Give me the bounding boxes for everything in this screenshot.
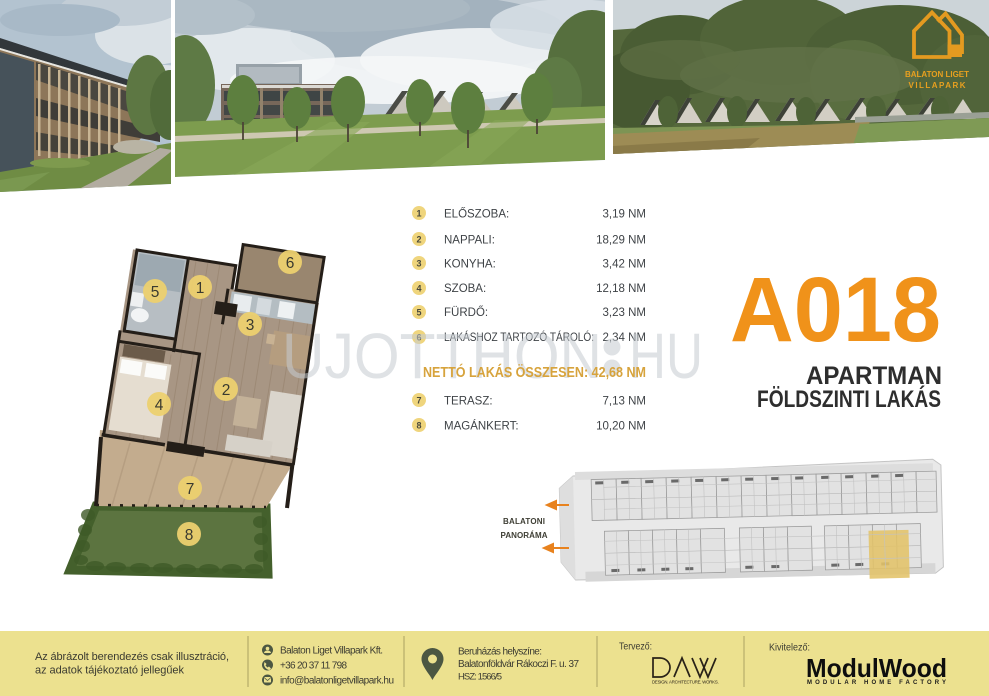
svg-text:Kivitelező:: Kivitelező: bbox=[769, 643, 810, 654]
svg-text:Tervező:: Tervező: bbox=[619, 642, 652, 653]
svg-text:10,20 NM: 10,20 NM bbox=[596, 421, 646, 433]
svg-text:info@balatonligetvillapark.hu: info@balatonligetvillapark.hu bbox=[280, 676, 394, 687]
svg-text:Beruházás helyszíne:: Beruházás helyszíne: bbox=[458, 647, 542, 658]
svg-text:SZOBA:: SZOBA: bbox=[444, 283, 486, 295]
svg-text:1: 1 bbox=[196, 280, 205, 297]
svg-text:12,18 NM: 12,18 NM bbox=[596, 283, 646, 295]
svg-text:8: 8 bbox=[185, 527, 194, 544]
svg-text:ModulWood: ModulWood bbox=[806, 653, 947, 683]
svg-text:KONYHA:: KONYHA: bbox=[444, 259, 496, 271]
svg-text:Balatonföldvár Rákoczi F. u. 3: Balatonföldvár Rákoczi F. u. 37 bbox=[458, 659, 579, 670]
svg-text:3,19 NM: 3,19 NM bbox=[603, 209, 646, 221]
svg-text:3,23 NM: 3,23 NM bbox=[603, 307, 646, 319]
svg-text:DESIGN. ARCHITECTURE. WORKS.: DESIGN. ARCHITECTURE. WORKS. bbox=[652, 680, 719, 685]
svg-text:VILLAPARK: VILLAPARK bbox=[909, 81, 966, 90]
svg-text:Az ábrázolt berendezés csak il: Az ábrázolt berendezés csak illusztráció… bbox=[35, 651, 229, 663]
svg-text:7: 7 bbox=[416, 396, 421, 406]
svg-text:NETTÓ LAKÁS ÖSSZESEN: 42,68 N: NETTÓ LAKÁS ÖSSZESEN: 42,68 NM bbox=[423, 363, 646, 381]
svg-text:FÜRDŐ:: FÜRDŐ: bbox=[444, 305, 488, 319]
svg-text:HU: HU bbox=[629, 320, 703, 392]
svg-text:BALATONI: BALATONI bbox=[503, 517, 545, 526]
svg-text:3,42 NM: 3,42 NM bbox=[603, 259, 646, 271]
svg-text:NAPPALI:: NAPPALI: bbox=[444, 235, 495, 247]
svg-text:3: 3 bbox=[246, 317, 255, 334]
svg-text:5: 5 bbox=[151, 284, 160, 301]
svg-text:3: 3 bbox=[416, 259, 421, 269]
svg-text:2: 2 bbox=[222, 382, 231, 399]
svg-text:2: 2 bbox=[416, 235, 421, 245]
svg-text:18,29 NM: 18,29 NM bbox=[596, 235, 646, 247]
svg-text:PANORÁMA: PANORÁMA bbox=[501, 531, 548, 540]
svg-text:7,13 NM: 7,13 NM bbox=[603, 396, 646, 408]
svg-text:UJOTTHON: UJOTTHON bbox=[282, 320, 602, 392]
svg-text:TERASZ:: TERASZ: bbox=[444, 396, 493, 408]
svg-text:MAGÁNKERT:: MAGÁNKERT: bbox=[444, 420, 519, 433]
svg-text:6: 6 bbox=[286, 255, 295, 272]
svg-text:7: 7 bbox=[186, 481, 195, 498]
svg-text:4: 4 bbox=[416, 284, 421, 294]
svg-text:FÖLDSZINTI LAKÁS: FÖLDSZINTI LAKÁS bbox=[757, 385, 941, 413]
svg-text:az adatok tájékoztató jellegűe: az adatok tájékoztató jellegűek bbox=[35, 665, 185, 677]
svg-text:4: 4 bbox=[155, 397, 164, 414]
svg-text:HSZ: 1566/5: HSZ: 1566/5 bbox=[458, 672, 502, 683]
svg-text:+36 20 37 11 798: +36 20 37 11 798 bbox=[280, 661, 347, 672]
svg-text:1: 1 bbox=[416, 209, 421, 219]
svg-text:BALATON LIGET: BALATON LIGET bbox=[905, 70, 969, 79]
svg-text:Balaton Liget Villapark Kft.: Balaton Liget Villapark Kft. bbox=[280, 646, 383, 657]
svg-text:ELŐSZOBA:: ELŐSZOBA: bbox=[444, 207, 509, 221]
svg-text:5: 5 bbox=[416, 308, 421, 318]
svg-text:8: 8 bbox=[416, 421, 421, 431]
svg-text:A018: A018 bbox=[730, 259, 941, 361]
